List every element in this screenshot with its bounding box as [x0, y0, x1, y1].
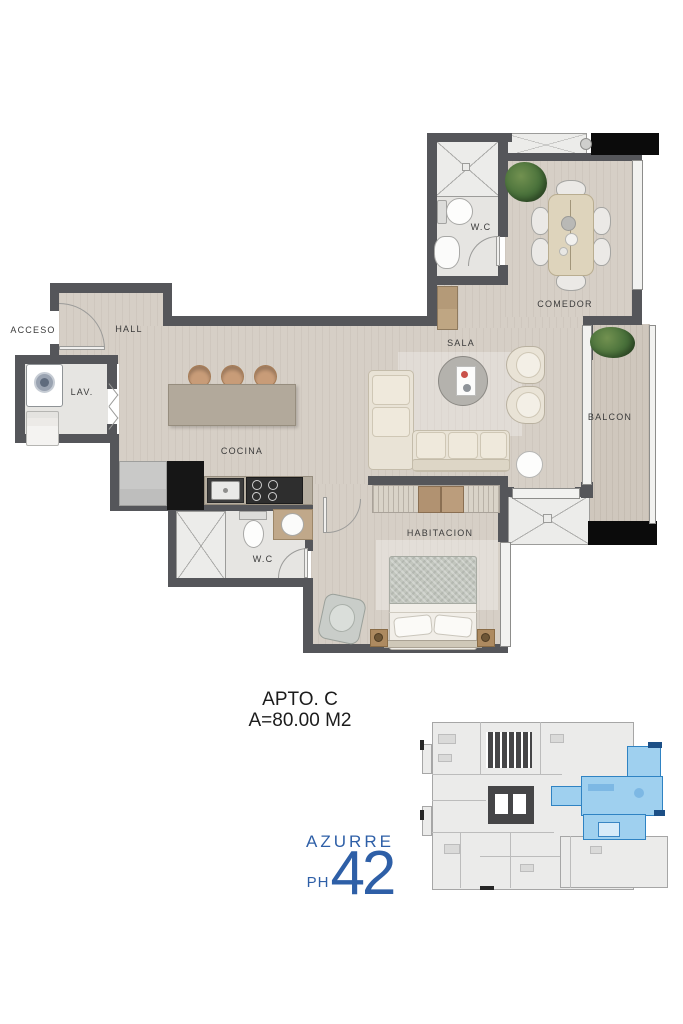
apartment-area: A=80.00 M2 — [200, 710, 400, 731]
keyplan — [420, 714, 670, 896]
tall-cabinet — [167, 461, 204, 510]
room-label-balcon: BALCON — [588, 412, 632, 422]
armchair-seat — [516, 352, 541, 378]
keyplan-slab — [420, 740, 424, 750]
bed-blanket — [389, 556, 477, 604]
armchair-seat — [516, 392, 541, 418]
keyplan-partition — [540, 722, 541, 774]
laundry-basket — [26, 411, 59, 446]
wall — [168, 578, 313, 587]
wall — [50, 283, 172, 293]
apartment-title: APTO. C A=80.00 M2 — [200, 689, 400, 731]
washer-drum-center — [40, 378, 49, 387]
pillow — [393, 614, 433, 638]
tray-decor — [463, 384, 471, 392]
sink-drain — [223, 488, 228, 493]
sofa-back — [412, 459, 510, 471]
keyplan-slab — [420, 810, 424, 820]
keyplan-partition — [570, 836, 571, 888]
toilet-bowl — [243, 520, 264, 548]
room-label-habitacion: HABITACION — [407, 528, 473, 538]
toilet-tank — [239, 511, 267, 520]
deck-drain — [543, 514, 552, 523]
highlighted-unit — [581, 776, 663, 816]
keyplan-partition — [460, 832, 461, 888]
keyplan-partition — [510, 832, 511, 888]
burner — [268, 480, 278, 490]
burner — [252, 480, 262, 490]
burner — [268, 492, 277, 501]
wall — [15, 355, 118, 364]
highlighted-unit — [551, 786, 582, 806]
closet-sliding-panel — [441, 486, 464, 513]
table-decor — [559, 247, 568, 256]
room-label-wc1: W.C — [471, 222, 492, 232]
shower-wc2 — [176, 511, 226, 581]
shower1-drain — [462, 163, 470, 171]
plant — [590, 327, 635, 358]
keyplan-furniture — [438, 754, 452, 762]
bathroom-sink — [434, 236, 460, 269]
tray-decor — [461, 371, 468, 378]
sofa-cushion — [416, 432, 446, 459]
brand-logo: AZURRE PH 42 — [292, 832, 408, 901]
wall — [368, 476, 508, 485]
column — [580, 138, 592, 150]
refrigerator — [119, 461, 167, 506]
vanity-sink — [281, 513, 304, 536]
burner — [252, 492, 261, 501]
table-decor — [561, 216, 576, 231]
sofa-cushion — [372, 407, 410, 437]
kitchen-island — [168, 384, 296, 426]
keyplan-furniture — [590, 846, 602, 854]
table-decor — [565, 233, 578, 246]
room-label-lav: LAV. — [71, 387, 94, 397]
lamp — [481, 633, 490, 642]
brand-suffix: PH — [307, 874, 330, 891]
keyplan-partition — [432, 800, 486, 801]
wall — [163, 316, 437, 326]
keyplan-furniture — [550, 734, 564, 743]
window — [500, 542, 511, 647]
structural-slab — [591, 133, 659, 155]
keyplan-furniture — [520, 864, 534, 872]
structural-slab — [588, 521, 657, 545]
pillow — [433, 614, 473, 638]
dining-chair — [592, 238, 611, 266]
window — [632, 160, 643, 290]
wall — [168, 503, 176, 586]
hall-closet — [437, 286, 458, 330]
keyplan-body — [560, 836, 668, 888]
bed-fold-line — [389, 612, 477, 613]
sofa-cushion — [372, 375, 410, 405]
headboard — [384, 640, 482, 648]
lamp — [374, 633, 383, 642]
sliding-door — [582, 325, 592, 485]
apartment-name: APTO. C — [200, 689, 400, 710]
brand-number: 42 — [330, 847, 393, 901]
elevator-cab — [495, 794, 508, 814]
balcony-railing — [649, 325, 656, 524]
side-table — [516, 451, 543, 478]
elevator-cab — [513, 794, 526, 814]
highlighted-unit-slab — [654, 810, 665, 816]
folding-door — [108, 394, 118, 406]
highlighted-unit-table — [634, 788, 644, 798]
room-label-acceso: ACCESO — [10, 325, 55, 335]
wall — [303, 578, 313, 653]
sliding-door — [512, 488, 580, 499]
wall — [110, 434, 119, 511]
toilet-bowl — [446, 198, 473, 225]
plant — [505, 162, 547, 202]
highlighted-unit-sofa — [588, 784, 614, 791]
wall — [15, 355, 25, 443]
room-label-cocina: COCINA — [221, 446, 263, 456]
highlighted-unit-slab — [648, 742, 662, 748]
keyplan-furniture — [444, 844, 460, 854]
room-label-sala: SALA — [447, 338, 475, 348]
sofa-cushion — [448, 432, 478, 459]
highlighted-unit — [627, 746, 661, 778]
keyplan-slab — [480, 886, 494, 890]
wall — [427, 276, 508, 285]
room-label-hall: HALL — [115, 324, 142, 334]
room-label-wc2: W.C — [253, 554, 274, 564]
keyplan-partition — [480, 856, 560, 857]
wall — [427, 133, 437, 326]
keyplan-partition — [432, 832, 554, 833]
sofa-cushion — [480, 432, 507, 459]
keyplan-partition — [480, 722, 481, 774]
highlighted-unit-bed — [598, 822, 620, 837]
floorplan-page: ACCESO HALL LAV. COCINA SALA COMEDOR BAL… — [0, 0, 683, 1024]
keyplan-partition — [432, 774, 562, 775]
room-label-comedor: COMEDOR — [537, 299, 592, 309]
dining-chair — [592, 207, 611, 235]
closet-sliding-panel — [418, 486, 441, 513]
keyplan-furniture — [438, 734, 456, 744]
stair-core — [486, 732, 532, 768]
wall — [50, 283, 59, 311]
